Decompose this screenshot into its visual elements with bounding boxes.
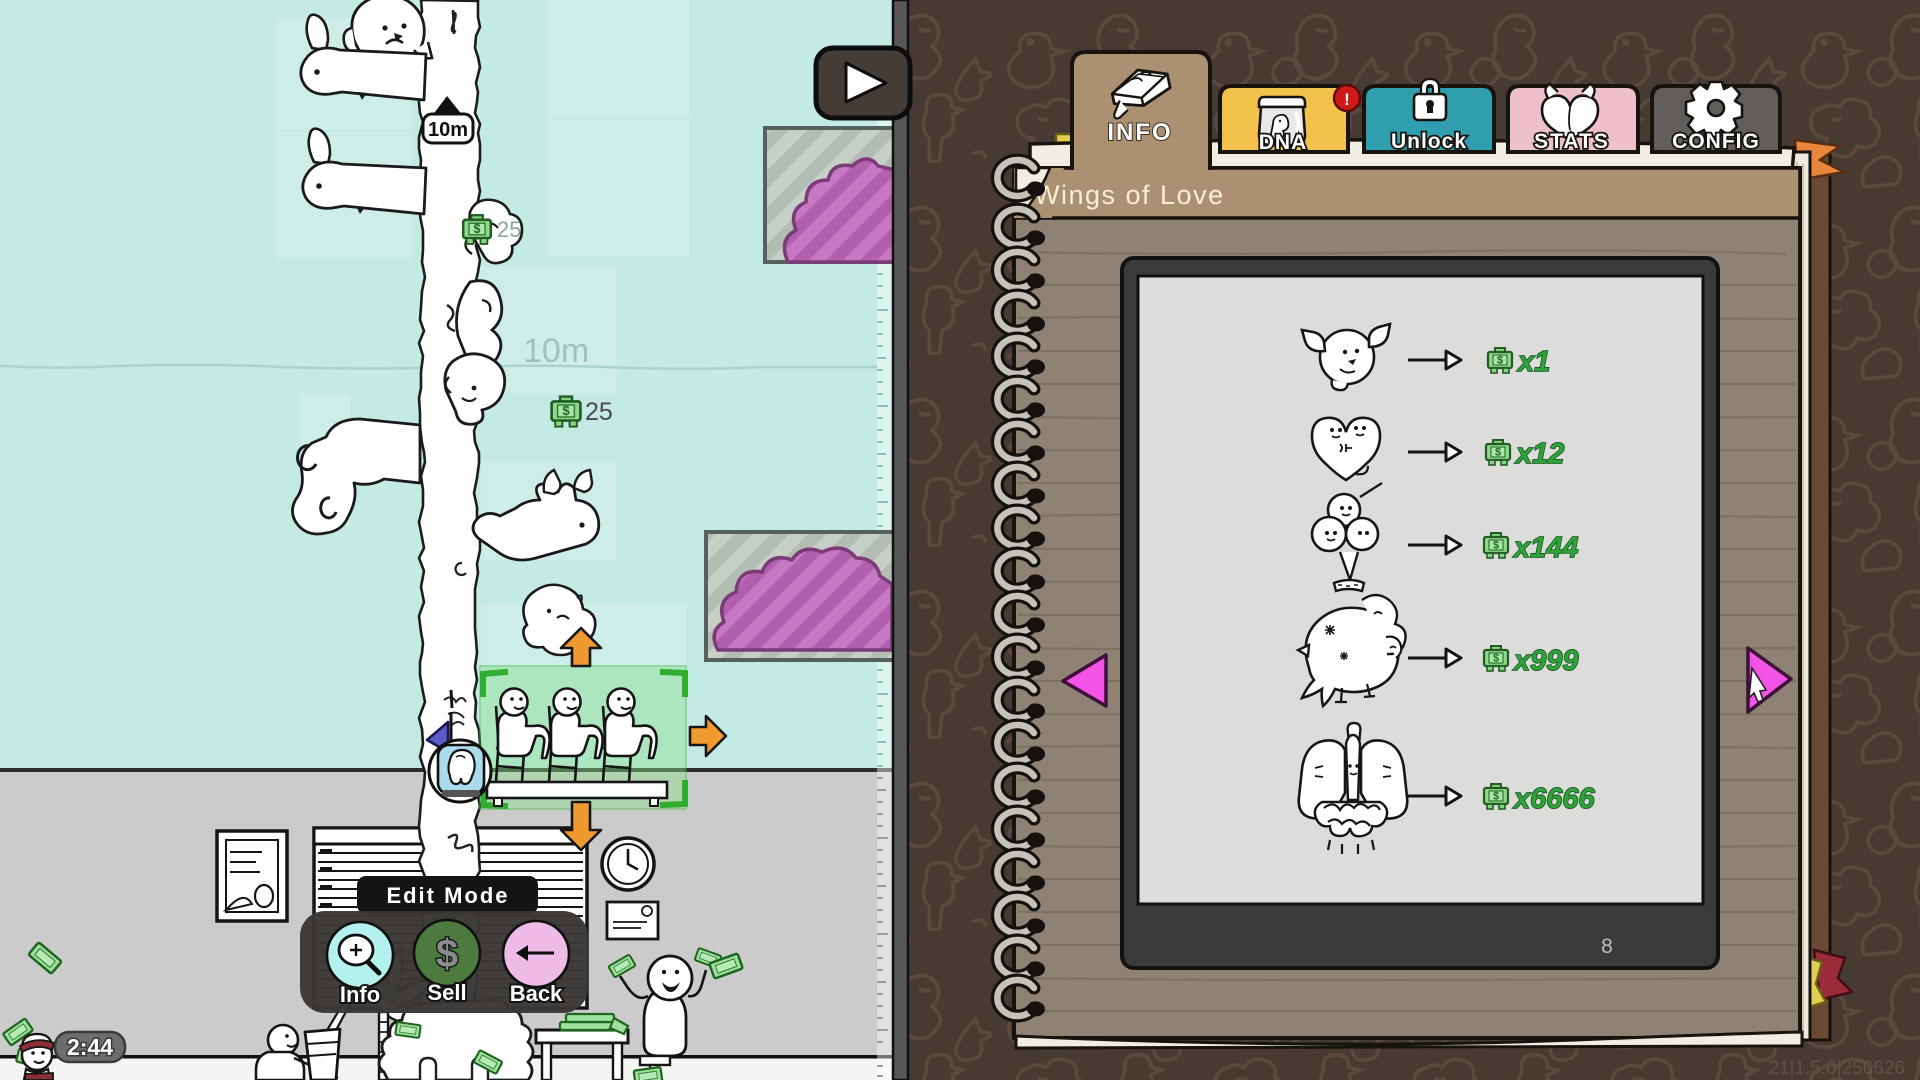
svg-text:x12: x12 (1514, 438, 1564, 470)
svg-text:!: ! (1344, 90, 1350, 109)
svg-text:STATS: STATS (1534, 130, 1610, 153)
svg-text:DNA: DNA (1259, 131, 1308, 154)
svg-text:21|1.5.0|250626: 21|1.5.0|250626 (1768, 1058, 1905, 1079)
svg-text:2:44: 2:44 (67, 1034, 113, 1060)
svg-text:25: 25 (497, 217, 521, 242)
svg-text:x999: x999 (1512, 645, 1579, 677)
svg-text:Wings of Love: Wings of Love (1034, 180, 1225, 210)
svg-text:10m: 10m (428, 119, 468, 141)
svg-text:25: 25 (585, 398, 613, 426)
svg-text:INFO: INFO (1107, 119, 1172, 146)
svg-text:x144: x144 (1512, 532, 1579, 564)
svg-text:Edit Mode: Edit Mode (386, 883, 509, 908)
svg-text:$: $ (436, 932, 458, 976)
svg-text:8: 8 (1601, 935, 1613, 958)
svg-text:x6666: x6666 (1512, 783, 1596, 815)
svg-text:x1: x1 (1516, 346, 1550, 378)
svg-text:Back: Back (510, 981, 563, 1006)
svg-text:Unlock: Unlock (1391, 130, 1467, 153)
svg-text:Info: Info (340, 982, 380, 1007)
svg-text:CONFIG: CONFIG (1672, 130, 1760, 153)
svg-text:Sell: Sell (427, 980, 466, 1005)
svg-text:10m: 10m (523, 332, 589, 370)
